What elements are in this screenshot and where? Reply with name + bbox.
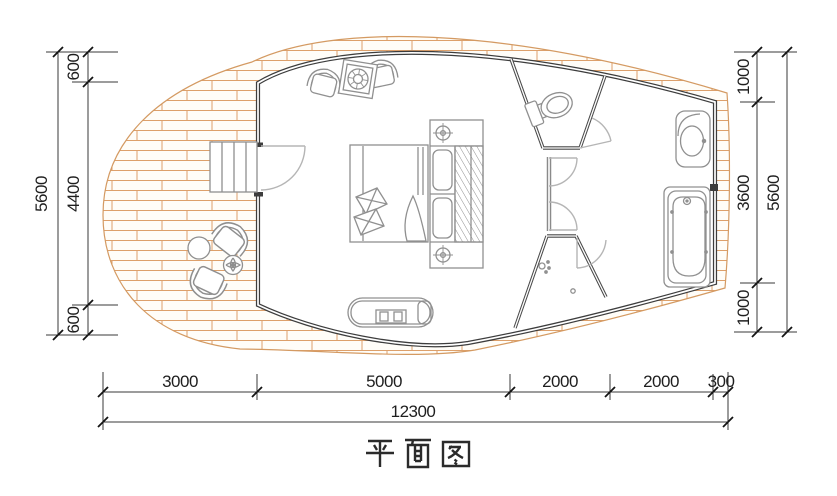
floor-plan-page: 5600 600 4400 600 1000 3600 1000 5600 30… [0,0,837,496]
plan-title-text: 平面图 [376,437,466,470]
bench-cushion-1 [433,150,452,190]
dim-bottom-seg-3: 2000 [643,372,679,391]
hanging-clothes-hatch [455,146,483,242]
floor-plan-drawing: 5600 600 4400 600 1000 3600 1000 5600 30… [0,0,837,496]
entrance-steps [210,142,257,192]
dim-bottom-seg-0: 3000 [162,372,198,391]
side-table [339,60,378,99]
outdoor-round-table [188,237,210,259]
dim-right-seg-1: 3600 [734,175,753,211]
tv-console [348,298,433,327]
dim-left-seg-2: 600 [64,307,83,334]
dim-left-total: 5600 [32,176,51,212]
basin-faucet [702,139,705,142]
dim-bottom-seg-2: 2000 [542,372,578,391]
dim-bottom-seg-1: 5000 [366,372,402,391]
dim-bottom-seg-4: 300 [708,372,735,391]
dim-right-total: 5600 [764,175,783,211]
building-walls [254,53,718,345]
dim-bottom-total: 12300 [391,402,436,421]
bed [350,145,428,242]
dim-left-seg-0: 600 [64,54,83,81]
basin-bowl [681,126,704,156]
outdoor-plant-stand [224,256,243,275]
wall-joint-mark [710,184,718,191]
washbasin [676,111,710,167]
dim-left-seg-1: 4400 [64,176,83,212]
dim-right-seg-0: 1000 [734,59,753,95]
door-jamb-bottom [254,192,263,197]
bench-cushion-2 [433,198,452,238]
dim-right-seg-2: 1000 [734,290,753,326]
wardrobe-column [430,120,483,268]
bathtub [664,187,710,287]
